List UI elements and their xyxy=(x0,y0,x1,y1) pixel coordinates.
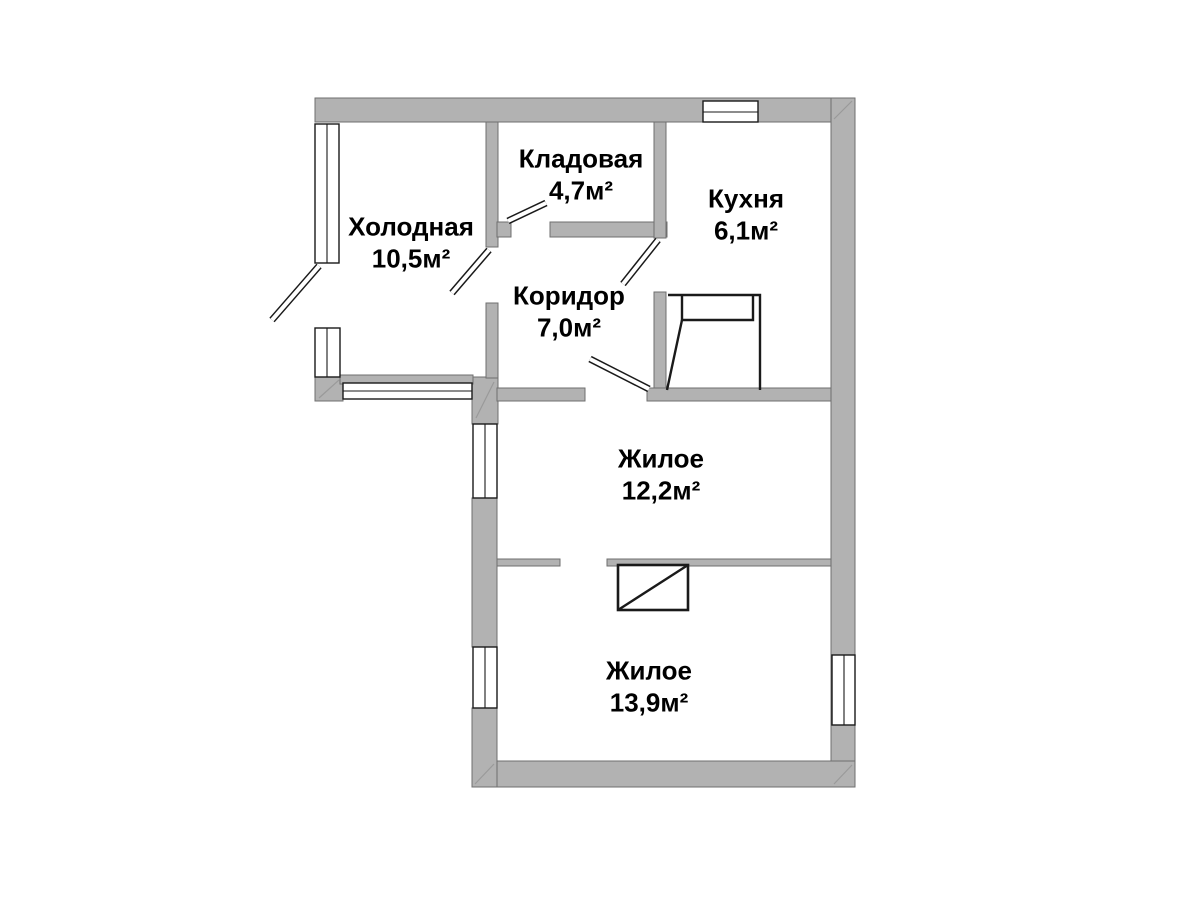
room-label-zhiloe-1: Жилое 12,2м² xyxy=(618,443,704,506)
room-area: 13,9м² xyxy=(606,687,692,719)
stove-symbol xyxy=(667,295,760,390)
floor-plan-page: Холодная 10,5м² Кладовая 4,7м² Кухня 6,1… xyxy=(0,0,1200,900)
room-name: Коридор xyxy=(513,280,625,312)
wall-kladovaya-door-stub xyxy=(497,222,511,237)
room-name: Жилое xyxy=(606,655,692,687)
room-name: Жилое xyxy=(618,443,704,475)
door-zhiloe1 xyxy=(590,359,649,389)
room-label-holodnaya: Холодная 10,5м² xyxy=(348,211,474,274)
room-area: 10,5м² xyxy=(348,243,474,275)
room-area: 6,1м² xyxy=(708,215,784,247)
vent-box-symbol xyxy=(618,565,688,610)
door-kuhnya xyxy=(623,240,658,284)
window-zhiloe1-west xyxy=(473,424,497,498)
wall-left-lower-bottom xyxy=(472,708,497,787)
wall-holodnaya-east-upper xyxy=(486,122,498,247)
door-entrance xyxy=(272,266,319,320)
wall-kladovaya-bottom xyxy=(550,222,667,237)
wall-top xyxy=(315,98,855,122)
window-zhiloe2-west xyxy=(473,647,497,708)
wall-zhiloe1-top-right xyxy=(647,388,831,401)
window-holodnaya-west-upper xyxy=(315,124,339,263)
wall-kuhnya-west-lower xyxy=(654,292,666,391)
room-label-kladovaya: Кладовая 4,7м² xyxy=(519,143,644,206)
wall-left-lower-mid xyxy=(472,498,497,647)
room-area: 12,2м² xyxy=(618,475,704,507)
room-label-zhiloe-2: Жилое 13,9м² xyxy=(606,655,692,718)
window-kuhnya-north xyxy=(703,101,758,122)
window-holodnaya-south xyxy=(343,383,472,399)
room-label-kuhnya: Кухня 6,1м² xyxy=(708,183,784,246)
room-name: Кладовая xyxy=(519,143,644,175)
room-name: Холодная xyxy=(348,211,474,243)
wall-bottom xyxy=(472,761,855,787)
room-label-koridor: Коридор 7,0м² xyxy=(513,280,625,343)
floor-plan-drawing xyxy=(0,0,1200,900)
window-zhiloe2-east xyxy=(832,655,855,725)
wall-kuhnya-west-upper xyxy=(654,122,666,238)
wall-holodnaya-east-lower xyxy=(486,303,498,378)
window-holodnaya-west-lower xyxy=(315,328,340,377)
room-name: Кухня xyxy=(708,183,784,215)
wall-zhiloe1-top-left xyxy=(497,388,585,401)
room-area: 4,7м² xyxy=(519,175,644,207)
room-area: 7,0м² xyxy=(513,312,625,344)
wall-zhiloe-divider-left xyxy=(497,559,560,566)
